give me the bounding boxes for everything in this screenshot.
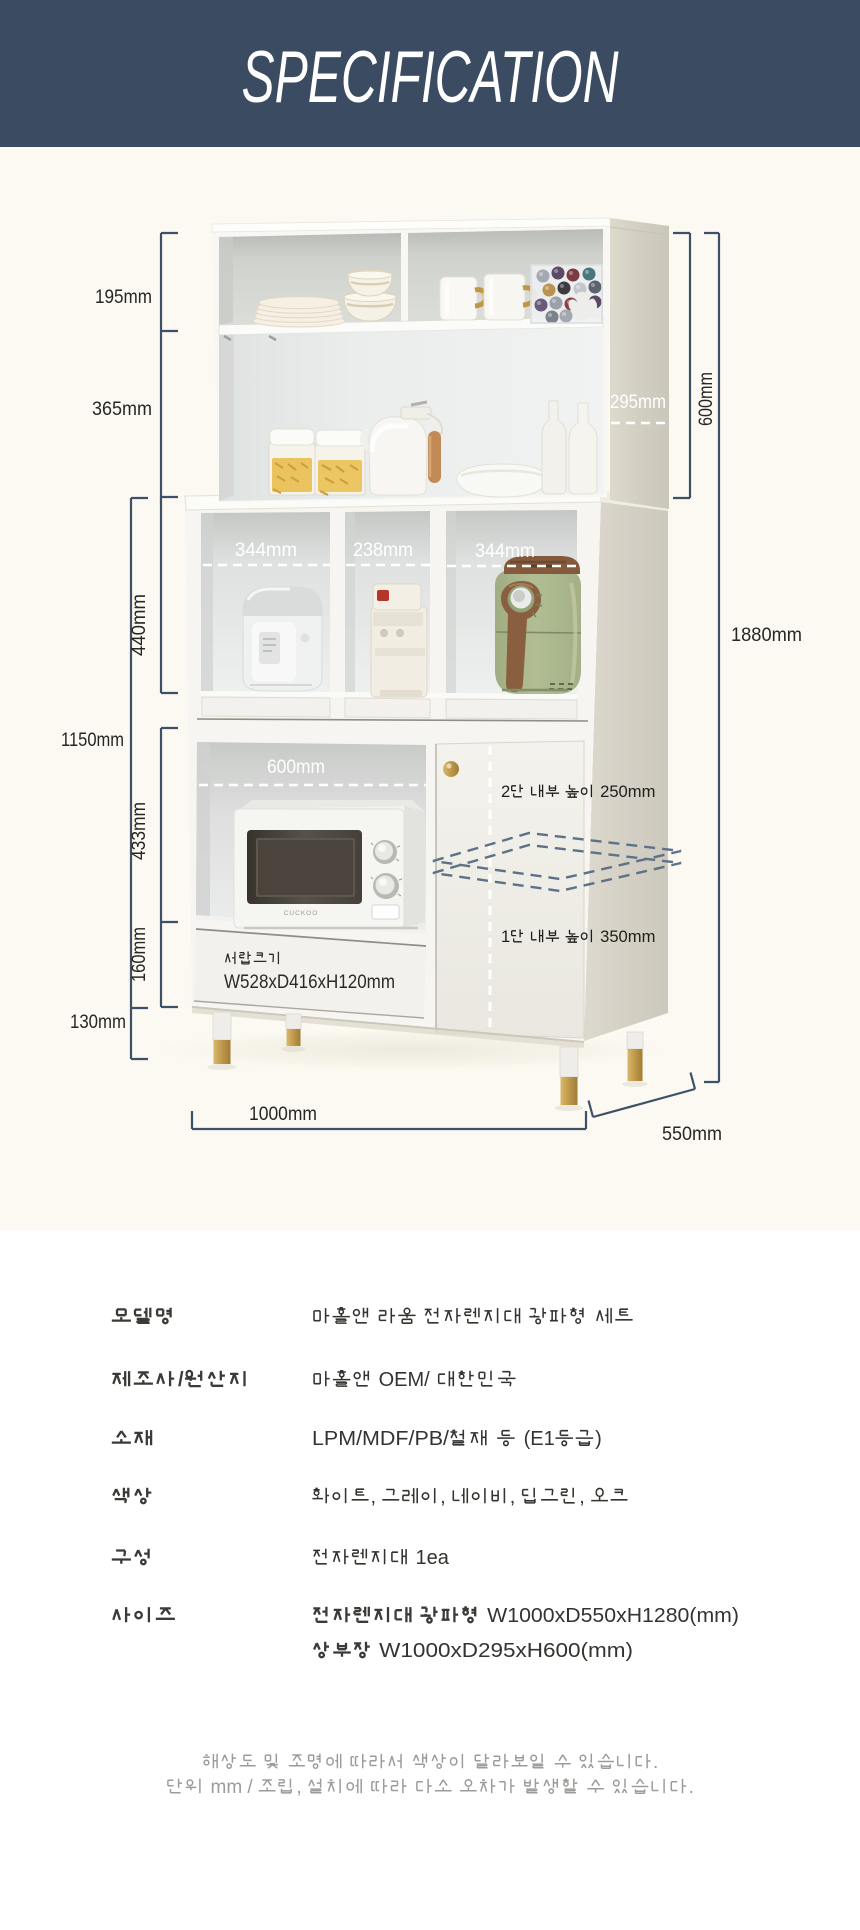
- svg-text:2: 2: [501, 782, 510, 801]
- svg-text:,: ,: [579, 1486, 585, 1508]
- svg-text:250mm: 250mm: [600, 782, 655, 801]
- svg-text:W1000xD550xH1280(mm): W1000xD550xH1280(mm): [487, 1605, 739, 1627]
- svg-text:LPM/MDF/PB/: LPM/MDF/PB/: [312, 1428, 449, 1450]
- svg-text:344mm: 344mm: [235, 539, 297, 561]
- svg-text:W1000xD295xH600(mm): W1000xD295xH600(mm): [379, 1640, 633, 1662]
- svg-text:160mm: 160mm: [128, 927, 150, 982]
- svg-text:600mm: 600mm: [267, 756, 325, 778]
- svg-text:195mm: 195mm: [95, 286, 152, 308]
- svg-text:SPECIFICATION: SPECIFICATION: [242, 37, 619, 118]
- svg-text:433mm: 433mm: [128, 802, 150, 860]
- svg-text:600mm: 600mm: [695, 372, 717, 426]
- svg-text:,: ,: [510, 1486, 516, 1508]
- svg-text:): ): [595, 1428, 602, 1450]
- svg-text:550mm: 550mm: [662, 1123, 722, 1145]
- svg-text:1000mm: 1000mm: [249, 1103, 317, 1125]
- svg-text:.: .: [653, 1752, 658, 1773]
- svg-text:1150mm: 1150mm: [61, 729, 124, 751]
- svg-text:CUCKOO: CUCKOO: [284, 910, 319, 917]
- svg-text:344mm: 344mm: [475, 540, 535, 562]
- svg-text:(E1: (E1: [524, 1428, 555, 1450]
- svg-text:mm /: mm /: [211, 1777, 254, 1798]
- svg-text:1880mm: 1880mm: [731, 624, 802, 646]
- svg-text:/: /: [178, 1369, 184, 1391]
- svg-text:365mm: 365mm: [92, 398, 152, 420]
- svg-text:1ea: 1ea: [416, 1547, 450, 1569]
- svg-text:295mm: 295mm: [610, 391, 666, 413]
- svg-text:350mm: 350mm: [600, 927, 655, 946]
- svg-text:,: ,: [296, 1777, 301, 1798]
- svg-text:W528xD416xH120mm: W528xD416xH120mm: [224, 972, 395, 993]
- svg-text:OEM/: OEM/: [379, 1369, 431, 1391]
- svg-text:238mm: 238mm: [353, 539, 413, 561]
- svg-text:.: .: [689, 1777, 694, 1798]
- svg-text:,: ,: [371, 1486, 377, 1508]
- svg-text:130mm: 130mm: [70, 1011, 126, 1033]
- svg-text:440mm: 440mm: [128, 594, 150, 656]
- svg-text:1: 1: [501, 927, 510, 946]
- svg-text:,: ,: [440, 1486, 446, 1508]
